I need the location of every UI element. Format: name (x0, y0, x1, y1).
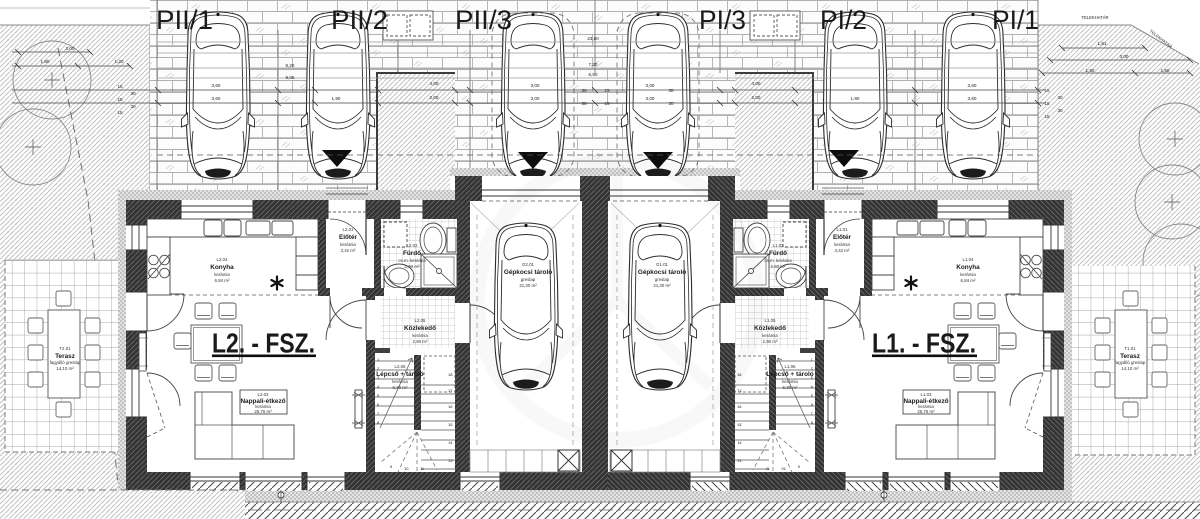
svg-text:3,60: 3,60 (212, 96, 221, 101)
svg-text:15: 15 (117, 97, 123, 102)
svg-text:30: 30 (1057, 108, 1063, 113)
svg-text:15: 15 (604, 88, 610, 93)
svg-text:kerámia: kerámia (340, 242, 356, 247)
svg-text:PI/2: PI/2 (820, 5, 867, 35)
svg-text:6,84 m²: 6,84 m² (961, 278, 976, 283)
svg-text:PII/1: PII/1 (156, 5, 213, 35)
svg-text:PII/3: PII/3 (455, 5, 512, 35)
svg-text:PI/1: PI/1 (992, 5, 1039, 35)
svg-text:6,30 m²: 6,30 m² (393, 385, 408, 390)
svg-text:L2.05: L2.05 (415, 318, 427, 323)
svg-text:3,00: 3,00 (646, 83, 655, 88)
svg-text:15: 15 (117, 84, 123, 89)
svg-text:2,00: 2,00 (752, 95, 761, 100)
svg-text:30: 30 (668, 88, 674, 93)
svg-text:kerámia: kerámia (762, 333, 778, 338)
svg-text:kerámia: kerámia (960, 272, 976, 277)
svg-text:1,20: 1,20 (115, 59, 124, 64)
svg-text:3,60: 3,60 (968, 83, 977, 88)
svg-text:3,00: 3,00 (646, 96, 655, 101)
svg-text:21,30 m²: 21,30 m² (653, 283, 671, 288)
svg-text:30: 30 (1057, 95, 1063, 100)
svg-text:15: 15 (1044, 88, 1050, 93)
svg-text:L2.04: L2.04 (217, 257, 229, 262)
svg-text:4,00: 4,00 (752, 81, 761, 86)
svg-text:6,84 m²: 6,84 m² (215, 278, 230, 283)
svg-text:3,00: 3,00 (531, 96, 540, 101)
svg-text:3,42 m²: 3,42 m² (341, 248, 356, 253)
svg-text:17: 17 (448, 388, 453, 393)
svg-text:Lépcső + tároló: Lépcső + tároló (766, 371, 814, 378)
svg-text:2,60 m²: 2,60 m² (405, 264, 420, 269)
svg-text:2,00: 2,00 (430, 95, 439, 100)
svg-text:6,30 m²: 6,30 m² (783, 385, 798, 390)
svg-text:4,00: 4,00 (430, 81, 439, 86)
svg-text:L1.04: L1.04 (963, 257, 975, 262)
svg-text:kerámia: kerámia (782, 379, 798, 384)
svg-text:8,20: 8,20 (286, 63, 295, 68)
svg-text:L2.03: L2.03 (258, 392, 270, 397)
svg-text:L1.01: L1.01 (837, 227, 849, 232)
svg-text:14,10 m²: 14,10 m² (56, 366, 74, 371)
svg-text:25,76 m²: 25,76 m² (917, 409, 935, 414)
svg-text:15: 15 (1044, 114, 1050, 119)
svg-text:L1. - FSZ.: L1. - FSZ. (872, 328, 976, 359)
svg-text:1,81: 1,81 (1098, 41, 1107, 46)
svg-text:L2.01: L2.01 (343, 227, 355, 232)
svg-text:kerámia: kerámia (392, 379, 408, 384)
svg-text:cs.m. kerámia: cs.m. kerámia (764, 258, 792, 263)
svg-text:kerámia: kerámia (834, 242, 850, 247)
svg-text:3,00: 3,00 (531, 83, 540, 88)
svg-text:TELEKHATÁR: TELEKHATÁR (1081, 15, 1108, 20)
svg-text:3,42 m²: 3,42 m² (835, 248, 850, 253)
svg-text:2,90 m²: 2,90 m² (413, 339, 428, 344)
svg-text:Fürdő: Fürdő (769, 250, 787, 257)
svg-text:kerámia: kerámia (214, 272, 230, 277)
svg-text:7,20: 7,20 (589, 62, 598, 67)
svg-text:greslap: greslap (655, 277, 670, 282)
svg-text:18: 18 (448, 372, 453, 377)
svg-text:15: 15 (1044, 101, 1050, 106)
svg-text:fagyálló greslap: fagyálló greslap (50, 360, 81, 365)
svg-text:Előtér: Előtér (339, 234, 358, 241)
svg-text:14: 14 (448, 440, 453, 445)
svg-text:6,90: 6,90 (589, 72, 598, 77)
svg-text:30: 30 (581, 88, 587, 93)
svg-text:15: 15 (448, 422, 453, 427)
svg-text:L2.02: L2.02 (407, 243, 419, 248)
svg-text:Gépkocsi tároló: Gépkocsi tároló (638, 269, 686, 276)
svg-text:kerámia: kerámia (412, 333, 428, 338)
svg-text:2,90 m²: 2,90 m² (763, 339, 778, 344)
svg-text:Előtér: Előtér (833, 234, 852, 241)
svg-text:PII/2: PII/2 (331, 5, 388, 35)
svg-text:21,30 m²: 21,30 m² (519, 283, 537, 288)
svg-text:L2. - FSZ.: L2. - FSZ. (212, 328, 315, 359)
svg-text:23,60: 23,60 (587, 36, 599, 41)
svg-text:Terasz: Terasz (55, 353, 75, 360)
svg-text:T2.01: T2.01 (59, 346, 71, 351)
svg-text:Terasz: Terasz (1120, 353, 1140, 360)
svg-text:3,60: 3,60 (968, 96, 977, 101)
svg-text:1,50: 1,50 (1086, 68, 1095, 73)
svg-text:T1.01: T1.01 (1124, 346, 1136, 351)
svg-text:G1.01: G1.01 (656, 262, 669, 267)
svg-text:25,76 m²: 25,76 m² (254, 409, 272, 414)
svg-text:L2.06: L2.06 (395, 364, 407, 369)
svg-text:cs.m. kerámia: cs.m. kerámia (398, 258, 426, 263)
svg-text:1,90: 1,90 (851, 96, 860, 101)
svg-text:2,60 m²: 2,60 m² (771, 264, 786, 269)
svg-text:15: 15 (117, 110, 123, 115)
svg-text:13: 13 (448, 458, 453, 463)
svg-text:G2.01: G2.01 (522, 262, 535, 267)
svg-text:L1.05: L1.05 (765, 318, 777, 323)
svg-text:10: 10 (404, 466, 409, 471)
svg-text:fagyálló greslap: fagyálló greslap (1115, 360, 1146, 365)
svg-text:1,90: 1,90 (332, 96, 341, 101)
svg-text:16: 16 (448, 404, 453, 409)
svg-text:3,00: 3,00 (1120, 54, 1129, 59)
svg-text:8,05: 8,05 (286, 75, 295, 80)
svg-text:L1.06: L1.06 (785, 364, 797, 369)
svg-text:Fürdő: Fürdő (403, 250, 421, 257)
svg-text:1,50: 1,50 (1161, 68, 1170, 73)
svg-text:PI/3: PI/3 (699, 5, 746, 35)
svg-text:Gépkocsi tároló: Gépkocsi tároló (504, 269, 552, 276)
svg-text:1,80: 1,80 (41, 59, 50, 64)
svg-text:L1.02: L1.02 (773, 243, 785, 248)
svg-text:Lépcső + tároló: Lépcső + tároló (376, 371, 424, 378)
svg-text:L1.03: L1.03 (921, 392, 933, 397)
svg-text:Konyha: Konyha (210, 264, 234, 271)
svg-text:30: 30 (581, 101, 587, 106)
svg-text:Közlekedő: Közlekedő (404, 325, 436, 332)
svg-text:3,00: 3,00 (66, 46, 75, 51)
svg-text:14,10 m²: 14,10 m² (1121, 366, 1139, 371)
svg-text:15: 15 (604, 101, 610, 106)
svg-text:greslap: greslap (521, 277, 536, 282)
svg-text:Konyha: Konyha (956, 264, 980, 271)
svg-text:3,60: 3,60 (212, 83, 221, 88)
svg-text:30: 30 (668, 101, 674, 106)
svg-text:30: 30 (130, 91, 136, 96)
svg-text:30: 30 (130, 104, 136, 109)
